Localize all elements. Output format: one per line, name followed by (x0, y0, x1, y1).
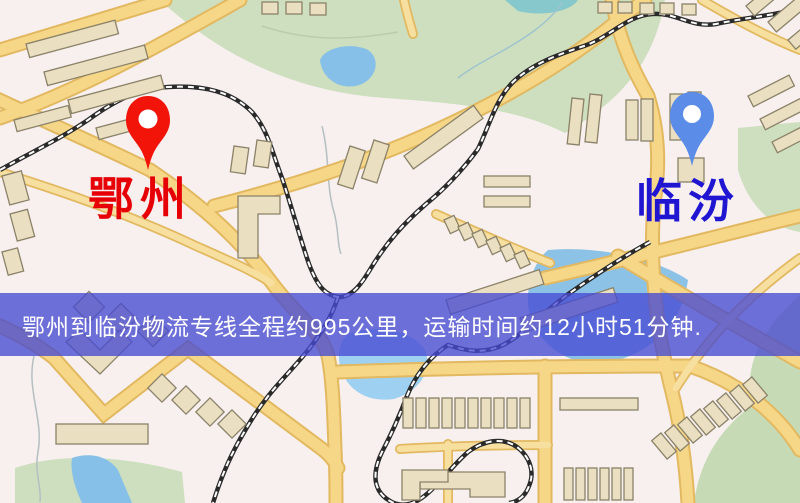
origin-city-label: 鄂州 (88, 176, 192, 222)
map-screenshot: 鄂州 临汾 鄂州到临汾物流专线全程约995公里，运输时间约12小时51分钟. (0, 0, 800, 503)
blue-location-pin-icon (664, 90, 720, 170)
map-canvas (0, 0, 800, 503)
destination-marker-pin (664, 90, 720, 170)
destination-city-label: 临汾 (636, 178, 740, 224)
route-info-text: 鄂州到临汾物流专线全程约995公里，运输时间约12小时51分钟. (22, 308, 702, 342)
route-info-banner: 鄂州到临汾物流专线全程约995公里，运输时间约12小时51分钟. (0, 293, 800, 356)
origin-marker-pin (120, 94, 176, 174)
red-location-pin-icon (120, 94, 176, 174)
